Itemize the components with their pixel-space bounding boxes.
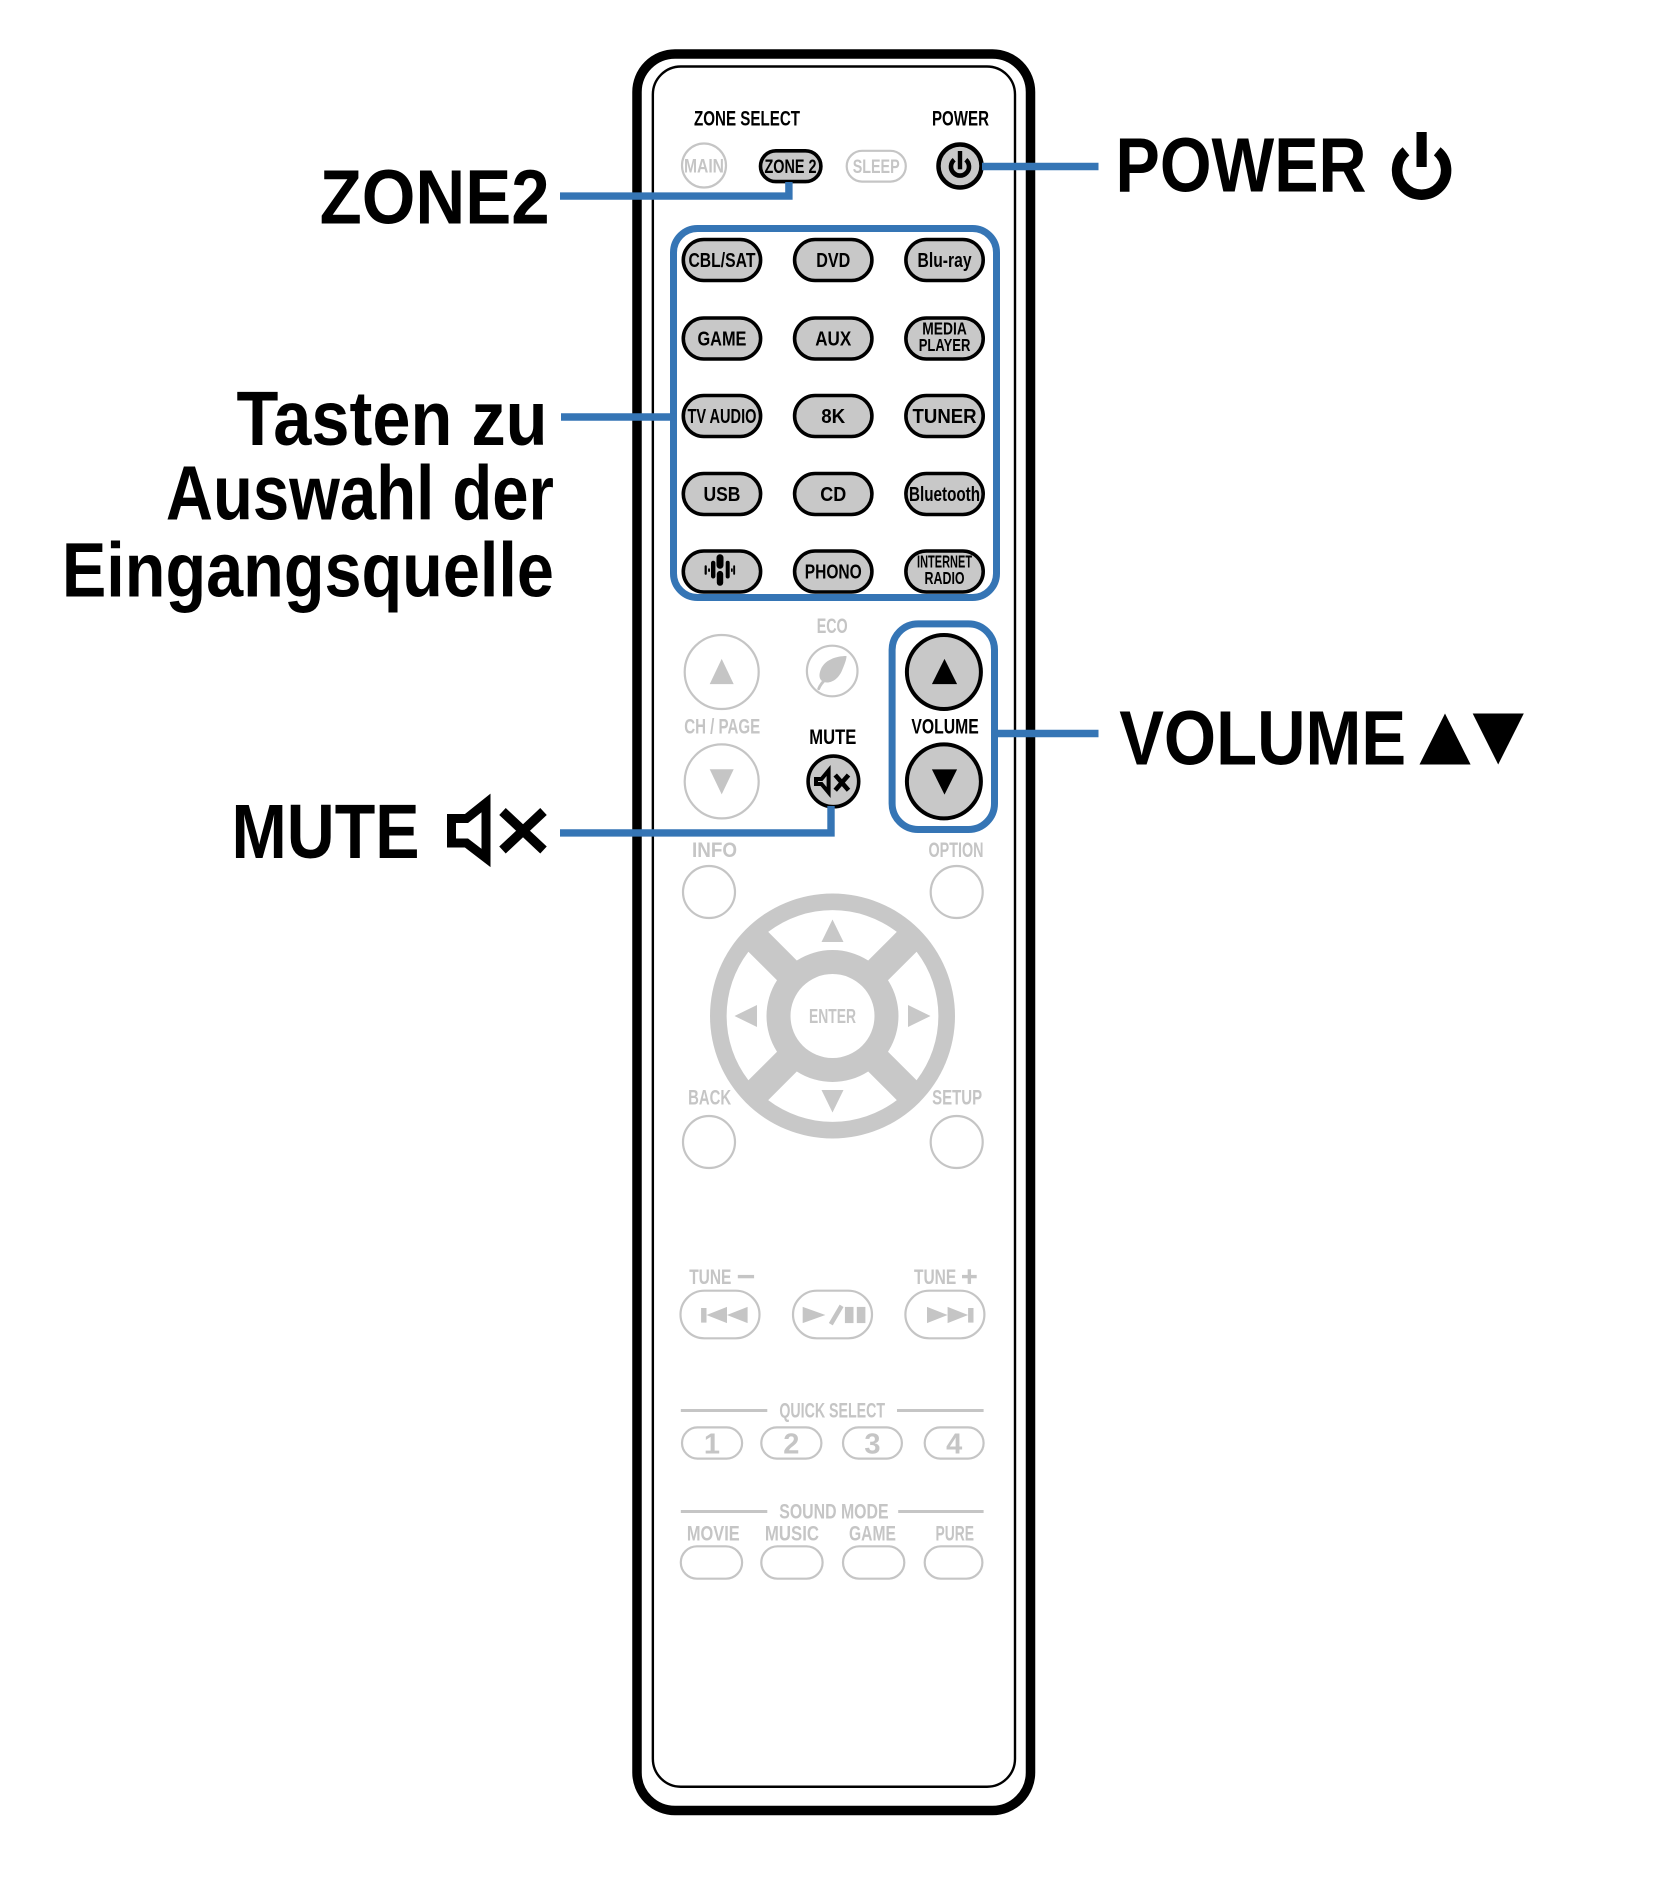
svg-text:Auswahl der: Auswahl der [166, 451, 554, 537]
svg-text:PURE: PURE [936, 1522, 975, 1545]
svg-text:SETUP: SETUP [932, 1087, 982, 1110]
svg-text:VOLUME: VOLUME [1119, 695, 1406, 781]
svg-text:ZONE 2: ZONE 2 [765, 157, 817, 178]
svg-text:SOUND MODE: SOUND MODE [779, 1501, 888, 1524]
svg-text:MOVIE: MOVIE [687, 1522, 740, 1545]
svg-text:Bluetooth: Bluetooth [909, 484, 980, 506]
svg-text:INFO: INFO [692, 839, 737, 862]
svg-text:DVD: DVD [816, 250, 850, 272]
svg-text:TV AUDIO: TV AUDIO [687, 406, 756, 428]
svg-text:AUX: AUX [815, 329, 852, 351]
svg-text:QUICK SELECT: QUICK SELECT [779, 1400, 885, 1423]
svg-text:Eingangsquelle: Eingangsquelle [62, 528, 554, 614]
svg-text:PHONO: PHONO [805, 562, 862, 584]
svg-text:GAME: GAME [697, 329, 746, 351]
svg-text:MUSIC: MUSIC [765, 1522, 819, 1545]
svg-text:ECO: ECO [817, 615, 848, 638]
svg-text:USB: USB [703, 484, 740, 506]
svg-text:POWER: POWER [1116, 123, 1367, 209]
svg-text:TUNER: TUNER [913, 406, 978, 428]
svg-text:ZONE2: ZONE2 [320, 155, 550, 241]
svg-text:PLAYER: PLAYER [919, 335, 971, 355]
svg-text:ZONE SELECT: ZONE SELECT [694, 108, 800, 131]
svg-text:RADIO: RADIO [925, 568, 965, 588]
svg-text:TUNE: TUNE [914, 1266, 956, 1289]
svg-text:CH / PAGE: CH / PAGE [684, 715, 760, 738]
svg-text:Blu-ray: Blu-ray [918, 250, 973, 272]
svg-text:SLEEP: SLEEP [853, 157, 900, 178]
svg-text:GAME: GAME [849, 1522, 896, 1545]
svg-text:4: 4 [946, 1429, 962, 1461]
svg-text:Tasten zu: Tasten zu [237, 376, 548, 462]
svg-text:MUTE: MUTE [809, 726, 856, 749]
svg-text:OPTION: OPTION [929, 839, 984, 862]
svg-text:POWER: POWER [932, 108, 989, 131]
svg-text:CD: CD [820, 484, 846, 506]
svg-text:8K: 8K [821, 406, 846, 428]
svg-text:MAIN: MAIN [684, 157, 724, 178]
svg-text:ENTER: ENTER [809, 1006, 856, 1028]
svg-text:CBL/SAT: CBL/SAT [688, 250, 755, 272]
svg-text:BACK: BACK [688, 1087, 731, 1110]
svg-text:3: 3 [864, 1429, 880, 1461]
svg-text:VOLUME: VOLUME [911, 715, 978, 738]
svg-text:1: 1 [704, 1429, 720, 1461]
svg-text:TUNE: TUNE [689, 1266, 731, 1289]
svg-text:MUTE: MUTE [232, 789, 420, 875]
svg-text:2: 2 [783, 1429, 799, 1461]
